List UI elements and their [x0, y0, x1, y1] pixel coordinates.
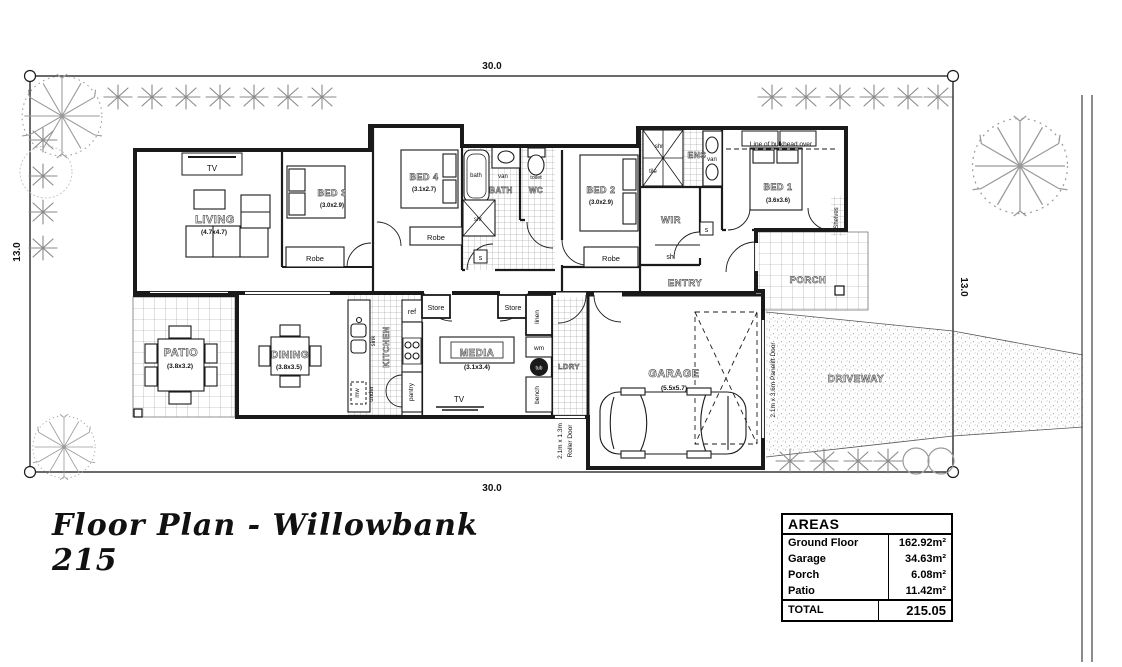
- roller-door-label: Roller Door: [567, 424, 574, 458]
- robe-label: Robe: [306, 254, 324, 263]
- plant-icon: [844, 449, 872, 473]
- room-label-ldry: LDRY: [558, 362, 580, 371]
- room-label-garage: GARAGE: [648, 368, 699, 380]
- room-label-patio: PATIO: [164, 347, 198, 359]
- plant-icon: [240, 85, 268, 109]
- plant-icon: [860, 85, 888, 109]
- wm-label: wm: [533, 345, 544, 352]
- smoke-label: s: [479, 255, 483, 262]
- shrub-icon: [928, 448, 954, 474]
- room-size-bed2: (3.0x2.9): [589, 200, 613, 206]
- areas-table: AREAS Ground Floor Garage Porch Patio 16…: [781, 513, 953, 622]
- road-kerb: [1082, 95, 1092, 662]
- plant-icon: [826, 85, 854, 109]
- areas-row-label: Garage: [783, 551, 888, 567]
- plant-icon: [308, 85, 336, 109]
- areas-row-label: Porch: [783, 567, 888, 583]
- plant-icon: [792, 85, 820, 109]
- mw-label: mw: [355, 388, 361, 398]
- under-label: under: [369, 386, 375, 401]
- plant-icon: [138, 85, 166, 109]
- areas-row-label: Patio: [783, 583, 888, 599]
- dim-right: 13.0: [958, 277, 969, 297]
- patio-post: [134, 409, 142, 417]
- room-label-living: LIVING: [195, 214, 235, 226]
- porch-post: [835, 286, 844, 295]
- plant-icon: [874, 449, 902, 473]
- store-label: Store: [428, 305, 445, 312]
- dim-left: 13.0: [12, 242, 23, 262]
- room-size-garage: (5.5x5.7): [661, 385, 687, 392]
- plant-icon: [29, 164, 57, 188]
- plant-icon: [29, 200, 57, 224]
- sink-label: sink: [371, 335, 377, 347]
- tile-label: tile: [649, 169, 657, 175]
- tv-label: TV: [454, 395, 465, 404]
- toilet: [528, 148, 545, 175]
- room-size-bed4: (3.1x2.7): [412, 187, 436, 193]
- areas-row-value: 162.92m²: [889, 535, 951, 551]
- room-label-bath: BATH: [489, 186, 513, 195]
- panelift-door-label: 2.1m x 3.6m Panelift Door: [770, 342, 777, 418]
- plant-icon: [172, 85, 200, 109]
- plant-icon: [206, 85, 234, 109]
- areas-table-header: AREAS: [783, 515, 951, 535]
- roller-door-label: 2.1m x 1.3m: [557, 423, 564, 459]
- room-label-driveway: DRIVEWAY: [828, 374, 884, 385]
- robe-label: Robe: [602, 254, 620, 263]
- ref-label: ref: [408, 309, 416, 316]
- room-size-bed3: (3.0x2.9): [320, 203, 344, 209]
- tv-label: TV: [207, 164, 218, 173]
- porch-floor: [756, 232, 868, 310]
- room-size-media: (3.1x3.4): [464, 364, 490, 371]
- room-label-porch: PORCH: [790, 275, 827, 286]
- plant-icon: [104, 85, 132, 109]
- toilet-label: toilet: [530, 175, 542, 181]
- ens-shower: [643, 130, 683, 186]
- plant-icon: [810, 449, 838, 473]
- room-size-dining: (3.8x3.5): [276, 364, 302, 371]
- linen-label: linen: [534, 310, 541, 324]
- plant-icon: [776, 449, 804, 473]
- bath-label: bath: [470, 173, 482, 179]
- room-label-dining: DINING: [271, 350, 309, 361]
- areas-row-value: 11.42m²: [889, 583, 951, 599]
- tree-icon: [973, 116, 1068, 216]
- smoke-label: s: [705, 227, 709, 234]
- bench-label: bench: [534, 386, 541, 404]
- van-label: van: [707, 157, 717, 163]
- robe-label: Robe: [427, 233, 445, 242]
- shr-label: shr: [474, 217, 482, 223]
- areas-row-value: 6.08m²: [889, 567, 951, 583]
- coffee-table: [194, 190, 225, 209]
- dim-top: 30.0: [482, 61, 502, 72]
- areas-row-value: 34.63m²: [889, 551, 951, 567]
- room-label-media: MEDIA: [460, 348, 495, 359]
- room-label-bed4: BED 4: [409, 172, 438, 182]
- room-label-bed3: BED 3: [317, 188, 346, 198]
- shr-label: shr: [655, 144, 663, 150]
- plant-icon: [274, 85, 302, 109]
- plan-title: Floor Plan - Willowbank 215: [52, 508, 532, 578]
- shrub-icon: [903, 448, 929, 474]
- tree-icon: [33, 414, 95, 480]
- room-label-bed1: BED 1: [763, 182, 792, 192]
- room-label-wir: WIR: [661, 215, 681, 226]
- areas-total-value: 215.05: [878, 601, 951, 620]
- tree-icon: [22, 74, 102, 158]
- dim-bottom: 30.0: [482, 483, 502, 494]
- plant-icon: [924, 85, 952, 109]
- room-label-kitchen: KITCHEN: [381, 326, 391, 367]
- plant-icon: [758, 85, 786, 109]
- room-label-ens: ENS: [688, 150, 707, 160]
- room-label-bed2: BED 2: [586, 185, 615, 195]
- room-size-patio: (3.8x3.2): [167, 363, 193, 370]
- room-label-entry: ENTRY: [668, 278, 703, 289]
- tub-label: tub: [536, 366, 543, 372]
- areas-row-label: Ground Floor: [783, 535, 888, 551]
- floor-plan-page: 30.0 30.0 13.0 13.0: [0, 0, 1122, 667]
- room-size-bed1: (3.6x3.6): [766, 198, 790, 204]
- plant-icon: [29, 236, 57, 260]
- sh-label: sh.: [666, 254, 675, 261]
- tree-icon: [20, 146, 72, 198]
- shelves-label: Shelves: [834, 207, 840, 228]
- areas-total-label: TOTAL: [783, 601, 878, 620]
- plant-icon: [894, 85, 922, 109]
- driveway-area: [766, 312, 1083, 457]
- store-label: Store: [505, 305, 522, 312]
- van-label: van: [498, 174, 508, 180]
- room-label-wc: WC: [529, 186, 543, 195]
- room-size-living: (4.7x4.7): [201, 229, 227, 236]
- bulkhead-label: Line of bulkhead over: [750, 141, 813, 148]
- pantry-label: pantry: [408, 382, 415, 401]
